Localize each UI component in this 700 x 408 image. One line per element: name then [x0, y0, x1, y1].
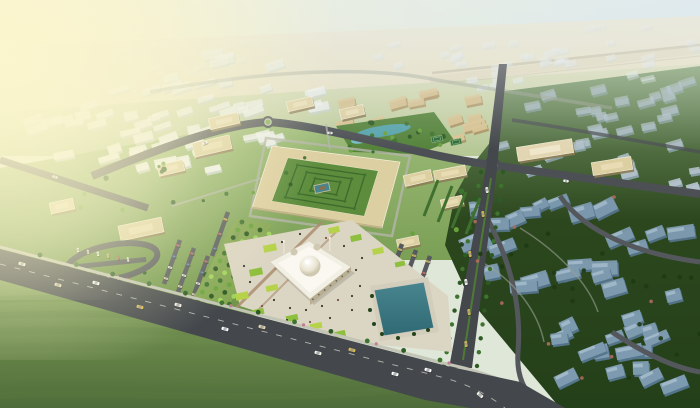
render-canvas — [0, 0, 700, 408]
sun-glow — [0, 0, 500, 360]
masterplan-aerial-render — [0, 0, 700, 408]
